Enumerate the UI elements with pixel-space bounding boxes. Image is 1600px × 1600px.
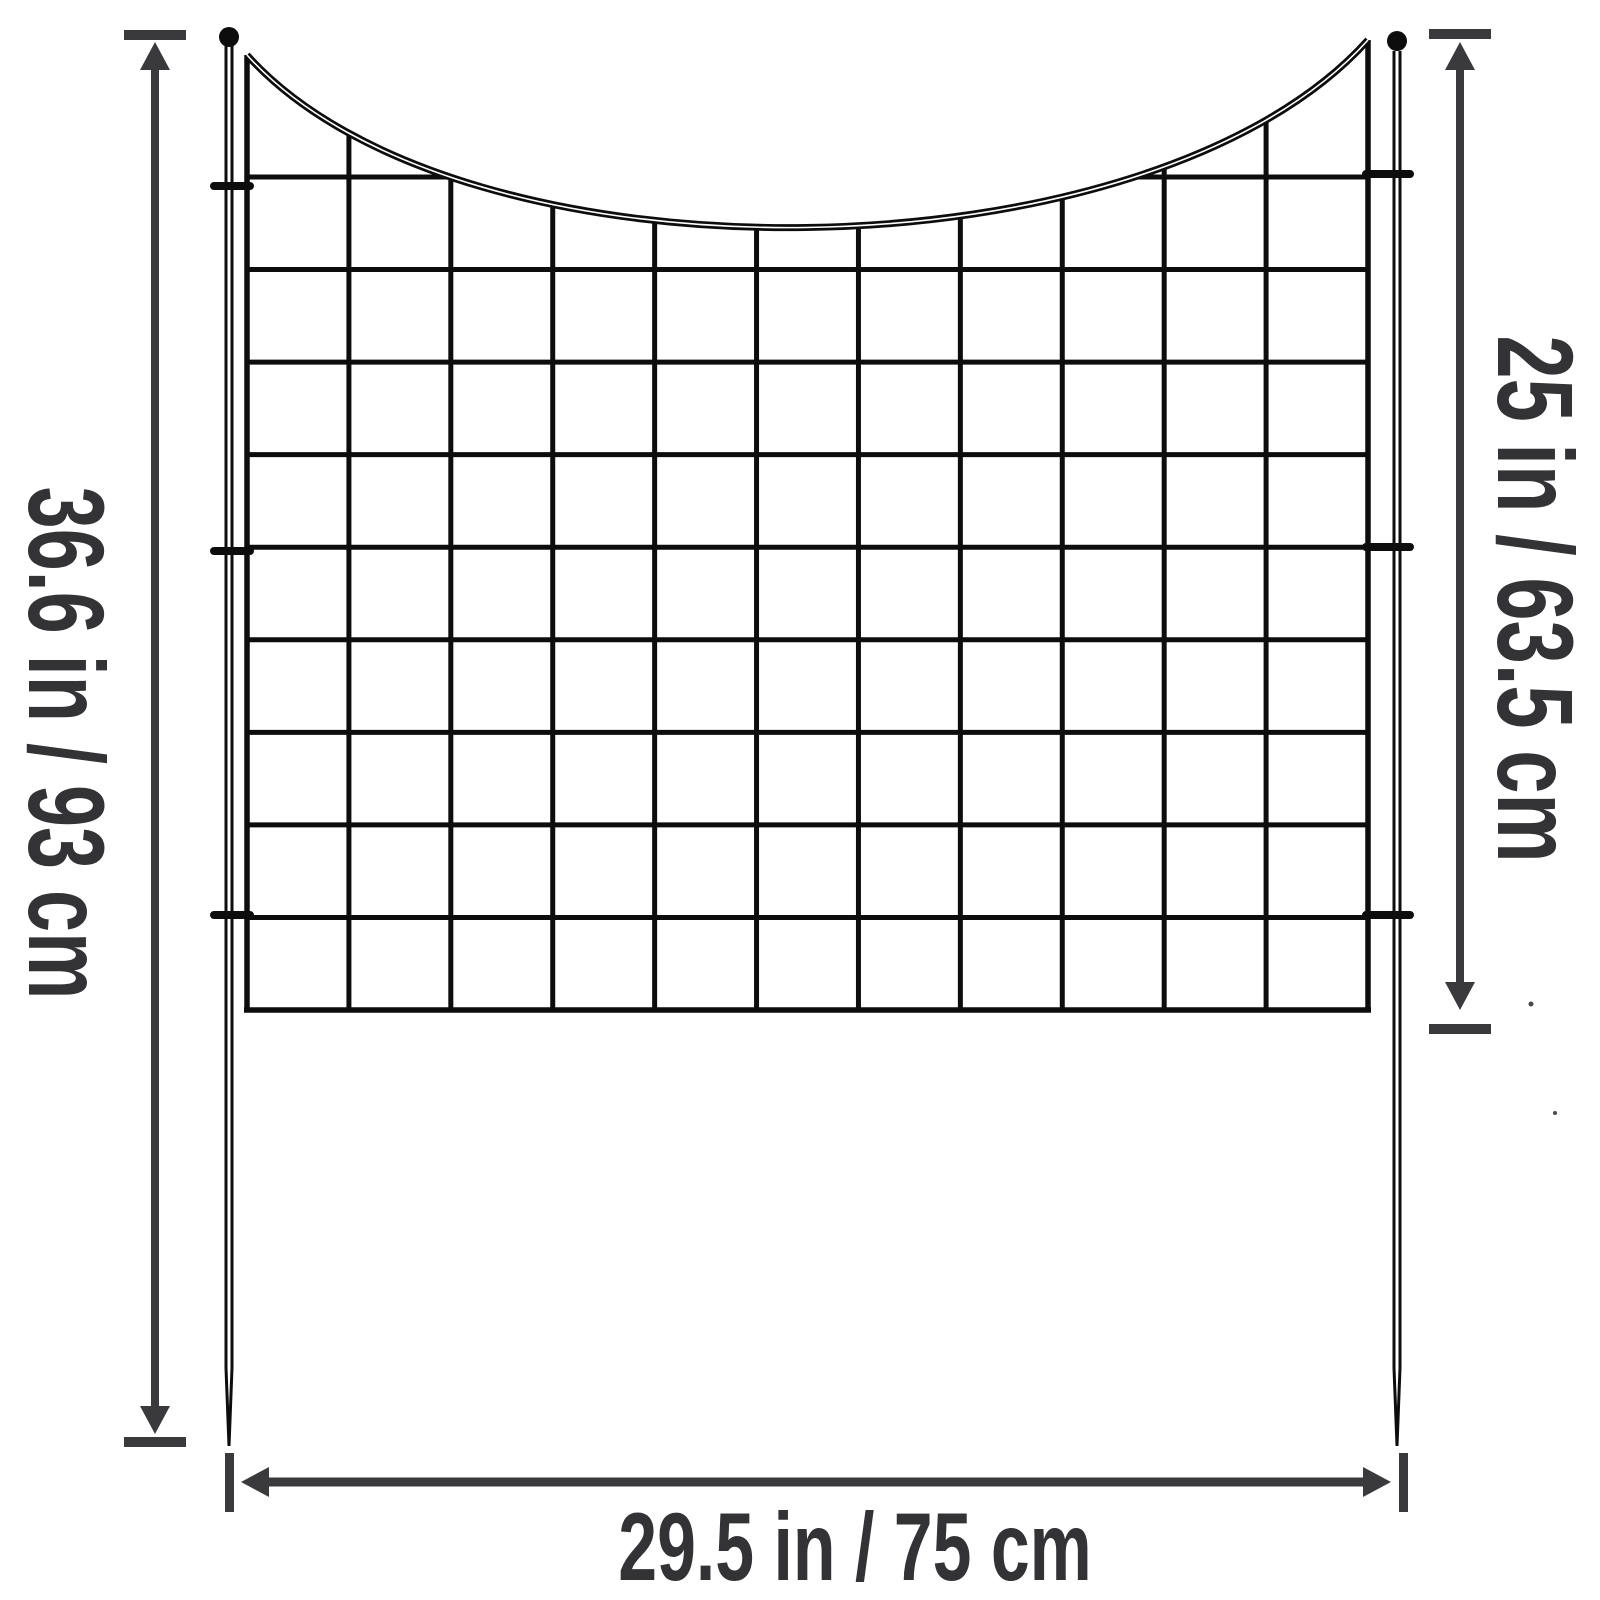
speck-artifacts <box>1529 1002 1558 1116</box>
fence-dimension-illustration: 36.6 in / 93 cm 25 in / 63.5 cm 29.5 in … <box>0 0 1600 1600</box>
panel-width-label: 29.5 in / 75 cm <box>618 1492 1092 1600</box>
top-rail <box>247 40 1368 228</box>
fence-panel <box>240 20 1375 1010</box>
left-dimension: 36.6 in / 93 cm <box>6 35 186 1442</box>
arrowhead-up-icon <box>140 42 170 70</box>
arrowhead-right-icon <box>1363 1467 1391 1497</box>
right-dimension: 25 in / 63.5 cm <box>1429 34 1596 1029</box>
arrowhead-up-icon <box>1445 42 1475 70</box>
left-stake-shaft <box>226 46 232 1446</box>
product-dimension-diagram: 36.6 in / 93 cm 25 in / 63.5 cm 29.5 in … <box>0 0 1600 1600</box>
right-stake <box>1366 31 1410 1446</box>
arrowhead-down-icon <box>1445 982 1475 1010</box>
speck-dot <box>1553 1111 1557 1115</box>
arrowhead-down-icon <box>140 1406 170 1434</box>
right-stake-connectors <box>1366 174 1410 915</box>
bottom-dimension: 29.5 in / 75 cm <box>230 1453 1404 1600</box>
grid-vertical-wires <box>349 20 1266 1010</box>
left-stake-ball-finial-icon <box>219 27 239 47</box>
panel-height-label: 25 in / 63.5 cm <box>1475 335 1596 862</box>
grid-horizontal-wires <box>240 177 1375 917</box>
panel-frame <box>244 40 1371 1010</box>
right-stake-ball-finial-icon <box>1387 31 1407 51</box>
total-height-label: 36.6 in / 93 cm <box>6 487 126 1000</box>
speck-dot <box>1529 1002 1534 1007</box>
right-stake-shaft <box>1394 51 1400 1446</box>
top-rail-highlight <box>247 40 1368 228</box>
arrowhead-left-icon <box>241 1467 269 1497</box>
